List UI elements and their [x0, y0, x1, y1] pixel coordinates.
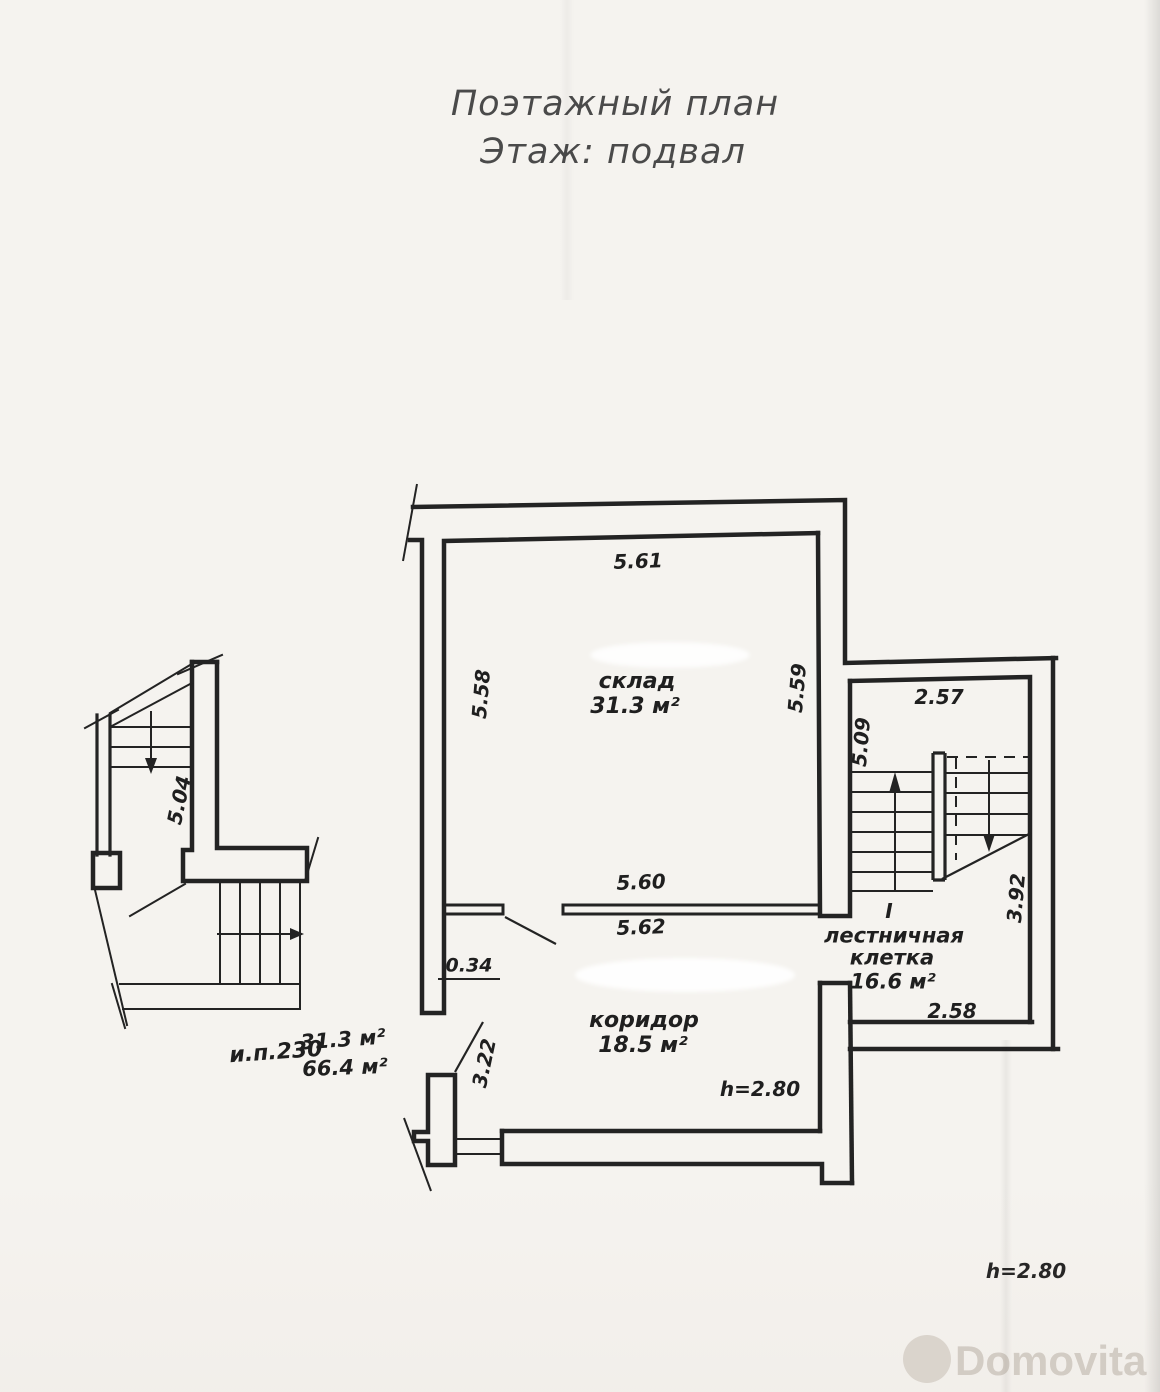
- dim-stair-left: 5.09: [849, 717, 873, 768]
- dim-partition-bottom: 5.62: [616, 916, 666, 938]
- scan-shading: [0, 1180, 1160, 1392]
- room-area-koridor: 18.5 м²: [598, 1035, 688, 1057]
- room-area-stair: 16.6 м²: [850, 972, 936, 993]
- dim-door-width: 0.34: [446, 957, 493, 976]
- room-index-stair: I: [885, 901, 892, 921]
- detail-right-arrow: [290, 928, 304, 940]
- partition-walls: [444, 905, 820, 914]
- stair-up-arrow: [889, 772, 901, 793]
- left-stair-detail: [85, 655, 318, 1028]
- stair-room-stairs: [852, 753, 1031, 891]
- dim-partition-top: 5.60: [616, 871, 666, 893]
- height-koridor: h=2.80: [720, 1079, 800, 1099]
- room-label-stair-line1: лестничная: [824, 926, 964, 947]
- dim-sklad-left: 5.58: [469, 669, 493, 720]
- dim-stair-top: 2.57: [914, 687, 963, 707]
- dim-sklad-top: 5.61: [613, 550, 663, 572]
- scanned-floor-plan-page: Поэтажный план Этаж: подвал 5.61 5.58 5.…: [0, 0, 1160, 1392]
- page-edge-shadow: [1144, 0, 1160, 1392]
- dim-stair-bottom: 2.58: [927, 1001, 976, 1021]
- dim-stair-right: 3.92: [1004, 873, 1028, 924]
- page-title-line2: Этаж: подвал: [480, 132, 746, 172]
- room-area-sklad: 31.3 м²: [590, 696, 680, 718]
- stair-down-arrow: [983, 834, 995, 852]
- note-area-total: 66.4 м²: [302, 1056, 388, 1080]
- page-title-line1: Поэтажный план: [451, 84, 779, 124]
- door-swings: [455, 917, 556, 1072]
- room-label-sklad: склад: [599, 671, 676, 693]
- room-label-stair-line2: клетка: [850, 948, 934, 969]
- room-label-koridor: коридор: [589, 1010, 699, 1032]
- dim-sklad-right: 5.59: [785, 663, 809, 714]
- scan-crease: [560, 0, 574, 300]
